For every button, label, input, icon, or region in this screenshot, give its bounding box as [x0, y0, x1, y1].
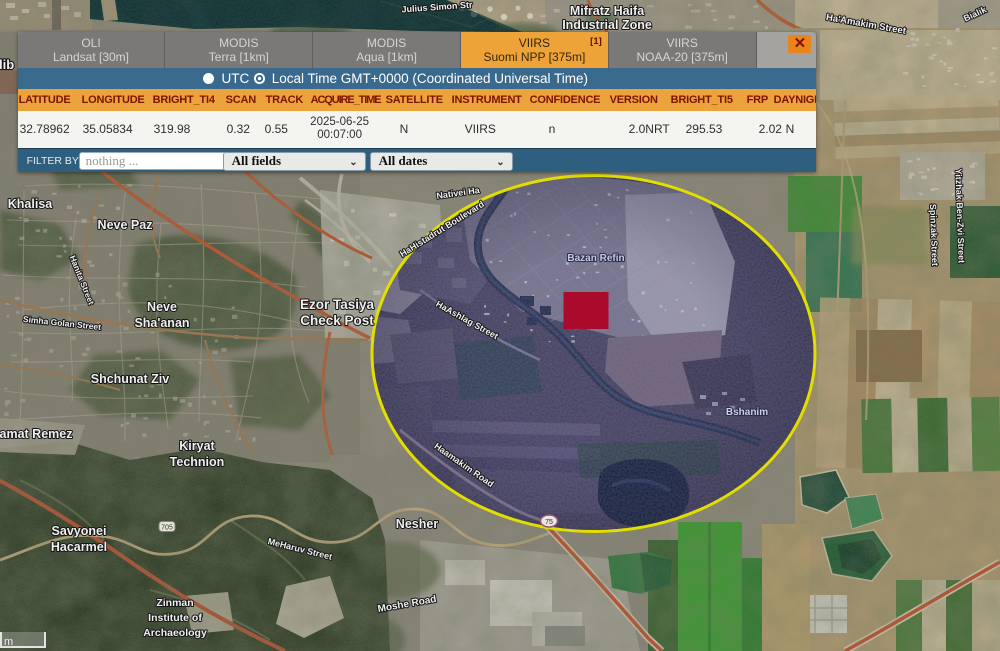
- svg-text:705: 705: [161, 525, 173, 532]
- svg-text:Savyonei: Savyonei: [52, 524, 107, 538]
- svg-text:Neve: Neve: [147, 300, 177, 314]
- svg-text:Check Post: Check Post: [300, 313, 374, 328]
- svg-text:m: m: [4, 636, 13, 648]
- svg-text:Industrial Zone: Industrial Zone: [562, 18, 652, 32]
- svg-text:Ezor Tasiya: Ezor Tasiya: [300, 297, 375, 312]
- svg-text:Archaeology: Archaeology: [143, 627, 207, 639]
- svg-text:Bazan Refin: Bazan Refin: [567, 253, 624, 264]
- svg-text:Bshanim: Bshanim: [726, 407, 768, 418]
- svg-text:Kiryat: Kiryat: [179, 439, 215, 453]
- svg-text:Institute of: Institute of: [148, 612, 202, 624]
- svg-text:amat Remez: amat Remez: [0, 427, 72, 441]
- svg-text:lib: lib: [0, 57, 14, 72]
- svg-text:Mifratz Haifa: Mifratz Haifa: [570, 4, 645, 18]
- svg-text:Nesher: Nesher: [396, 517, 439, 531]
- svg-text:Khalisa: Khalisa: [8, 197, 54, 211]
- svg-text:Zinman: Zinman: [156, 597, 193, 609]
- svg-text:Technion: Technion: [170, 455, 225, 469]
- svg-text:Neve Paz: Neve Paz: [98, 218, 153, 232]
- svg-text:75: 75: [545, 519, 553, 526]
- svg-text:Hacarmel: Hacarmel: [51, 540, 107, 554]
- svg-text:Sha'anan: Sha'anan: [134, 316, 189, 330]
- svg-text:Shchunat Ziv: Shchunat Ziv: [91, 372, 170, 386]
